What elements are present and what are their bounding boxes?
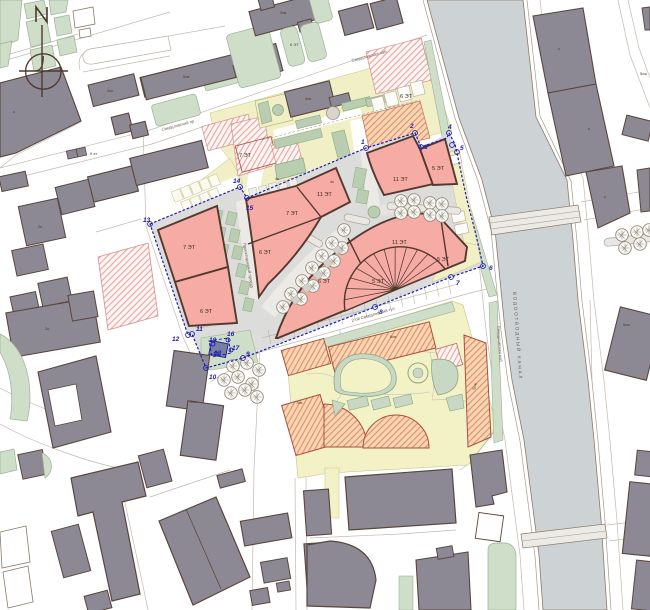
svg-text:7: 7: [456, 280, 460, 287]
svg-text:14: 14: [233, 178, 241, 185]
svg-text:4км: 4км: [190, 399, 197, 404]
svg-text:11: 11: [196, 326, 203, 333]
svg-text:5: 5: [460, 145, 464, 152]
svg-text:7 ЭТ: 7 ЭТ: [286, 211, 299, 217]
svg-text:к: к: [13, 109, 15, 114]
svg-text:4к: 4к: [330, 179, 334, 184]
svg-text:7 ЭТ: 7 ЭТ: [183, 245, 196, 251]
svg-text:4: 4: [447, 124, 452, 131]
svg-text:5 ЭТ: 5 ЭТ: [372, 279, 385, 285]
svg-text:13: 13: [143, 217, 151, 224]
svg-text:5сж: 5сж: [640, 71, 647, 76]
svg-text:4св: 4св: [305, 96, 311, 101]
svg-text:19: 19: [209, 337, 217, 344]
svg-text:к: к: [558, 46, 560, 51]
svg-text:6 ЭТ: 6 ЭТ: [400, 94, 413, 100]
svg-text:к: к: [604, 194, 606, 199]
svg-text:6 ЭТ: 6 ЭТ: [318, 279, 331, 285]
svg-text:6 ЭТ: 6 ЭТ: [290, 42, 299, 47]
svg-text:к: к: [588, 126, 590, 131]
svg-text:10: 10: [209, 374, 217, 381]
svg-text:5 ЭТ: 5 ЭТ: [432, 166, 445, 172]
svg-text:3: 3: [424, 144, 428, 151]
svg-text:4к: 4к: [275, 176, 279, 181]
svg-text:12: 12: [172, 336, 180, 343]
svg-text:2к: 2к: [45, 326, 49, 331]
svg-text:5сж: 5сж: [623, 322, 630, 327]
svg-text:9 эт: 9 эт: [90, 151, 97, 156]
svg-text:7 ЭТ: 7 ЭТ: [239, 153, 252, 159]
svg-text:6 ЭТ: 6 ЭТ: [259, 250, 272, 256]
svg-text:2: 2: [409, 123, 414, 130]
svg-text:5 ЭТ: 5 ЭТ: [437, 257, 450, 263]
svg-text:15: 15: [246, 205, 254, 212]
svg-text:1: 1: [361, 139, 365, 146]
svg-text:7св: 7св: [296, 400, 302, 405]
svg-text:17: 17: [232, 345, 240, 352]
svg-text:3ск: 3ск: [107, 88, 113, 93]
svg-text:6св: 6св: [390, 334, 396, 339]
svg-text:6 ЭТ: 6 ЭТ: [200, 309, 213, 315]
svg-text:11 ЭТ: 11 ЭТ: [392, 240, 407, 246]
svg-text:11 ЭТ: 11 ЭТ: [393, 177, 408, 183]
svg-text:18: 18: [214, 350, 222, 357]
svg-text:9св: 9св: [280, 10, 286, 15]
svg-text:9: 9: [246, 351, 250, 358]
svg-text:11 ЭТ: 11 ЭТ: [317, 192, 332, 198]
svg-text:2к: 2к: [38, 224, 42, 229]
svg-text:6: 6: [489, 265, 493, 272]
svg-text:5св: 5св: [183, 74, 189, 79]
svg-text:16: 16: [227, 331, 235, 338]
